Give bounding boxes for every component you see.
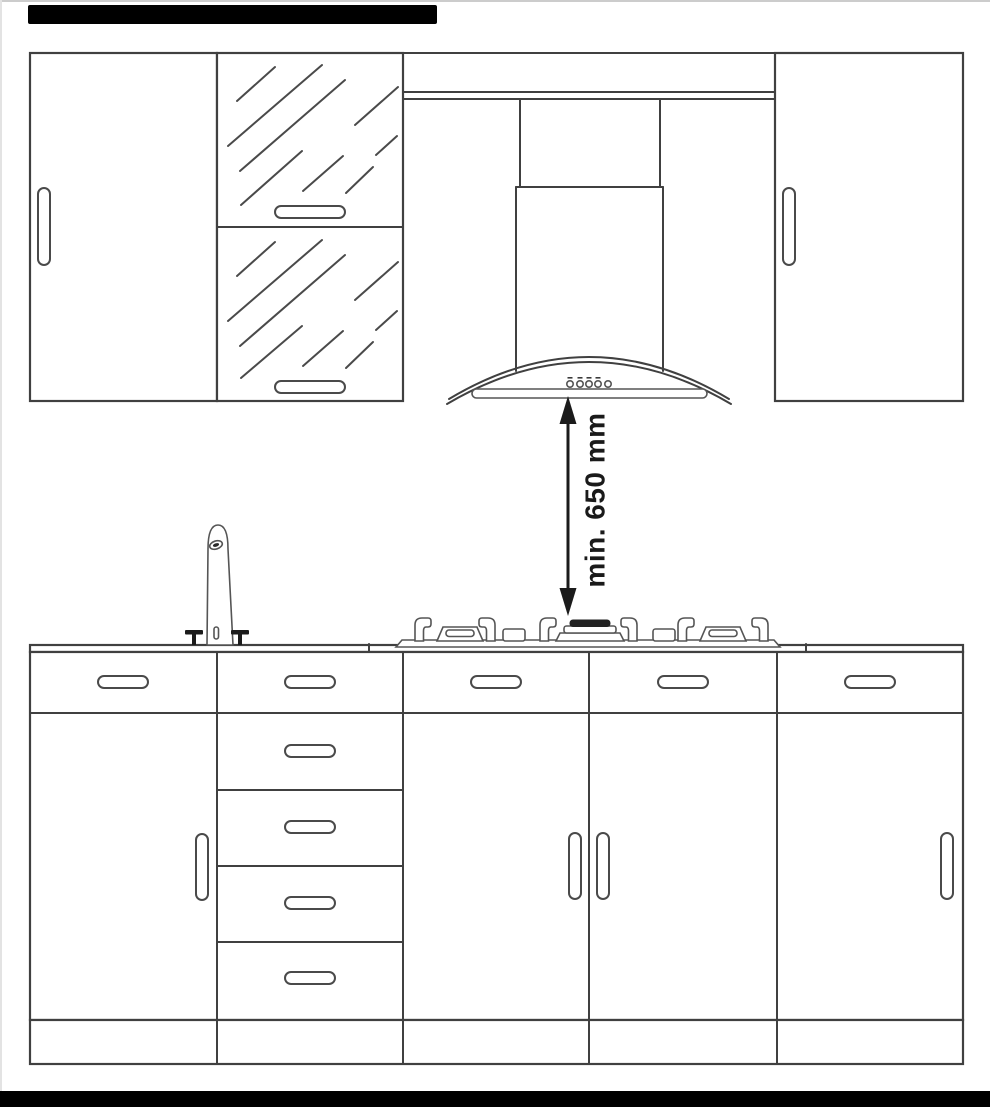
drawer-handle-c1 [98, 676, 148, 688]
wall-cabinet-right-door [775, 53, 963, 401]
page-edge-top [0, 0, 990, 2]
scan-bar-bottom [0, 1091, 990, 1107]
plinth-band [30, 1020, 963, 1064]
door-handle-c1 [196, 834, 208, 900]
glass-door-lower-handle [275, 381, 345, 393]
hob-burner-left [437, 627, 483, 641]
kitchen-installation-diagram: min. 650 mm [0, 0, 990, 1107]
tap-base-slot [214, 627, 219, 639]
arrowhead-up-icon [560, 396, 577, 424]
hob-burner-right [700, 627, 746, 641]
wall-cabinet-left-door [30, 53, 217, 401]
wall-cabinet-left-handle [38, 188, 50, 265]
drawer-handle-d3 [285, 821, 335, 833]
tap-handle-left [185, 630, 203, 645]
tap-handle-right [231, 630, 249, 645]
dimension-label: min. 650 mm [579, 412, 610, 587]
button-mark [568, 377, 573, 379]
soffit-strip [403, 92, 775, 99]
button-mark [587, 377, 592, 379]
hood-chimney-upper [516, 100, 663, 187]
wall-cabinet-left [30, 53, 217, 401]
glass-cabinet [217, 53, 403, 401]
glass-door-upper-handle [275, 206, 345, 218]
cooker-hood [447, 100, 731, 404]
drawer-handle-d4 [285, 897, 335, 909]
wall-units [30, 53, 963, 401]
drawer-handle-c3 [471, 676, 521, 688]
hob-burner-center-cap [570, 620, 610, 627]
plinth [30, 1020, 963, 1064]
gas-hob [396, 618, 780, 647]
hob-knob-right [653, 629, 675, 641]
dimension-arrow: min. 650 mm [560, 396, 611, 616]
base-cabinet-run [30, 652, 963, 1020]
hob-burner-center [556, 620, 624, 641]
arrowhead-down-icon [560, 588, 577, 616]
drawer-handle-c4 [658, 676, 708, 688]
mixer-tap [185, 525, 249, 645]
scan-bar-top [28, 5, 437, 24]
hood-bottom-panel [472, 389, 707, 398]
door-handle-c5 [941, 833, 953, 899]
drawer-handle-d2 [285, 745, 335, 757]
wall-cabinet-right [775, 53, 963, 401]
button-mark [596, 377, 601, 379]
hood-chimney-lower [516, 187, 663, 371]
page-edge-left [0, 0, 2, 1107]
drawer-handle-c5 [845, 676, 895, 688]
base-cabinets [30, 652, 963, 1064]
button-mark [578, 377, 583, 379]
door-handle-c4 [597, 833, 609, 899]
hood-control-buttons [567, 377, 611, 387]
wall-cabinet-right-handle [783, 188, 795, 265]
drawer-handle-c2 [285, 676, 335, 688]
door-handle-c3 [569, 833, 581, 899]
drawer-handle-d5 [285, 972, 335, 984]
hob-knob-left [503, 629, 525, 641]
diagram-canvas: min. 650 mm [0, 0, 990, 1107]
